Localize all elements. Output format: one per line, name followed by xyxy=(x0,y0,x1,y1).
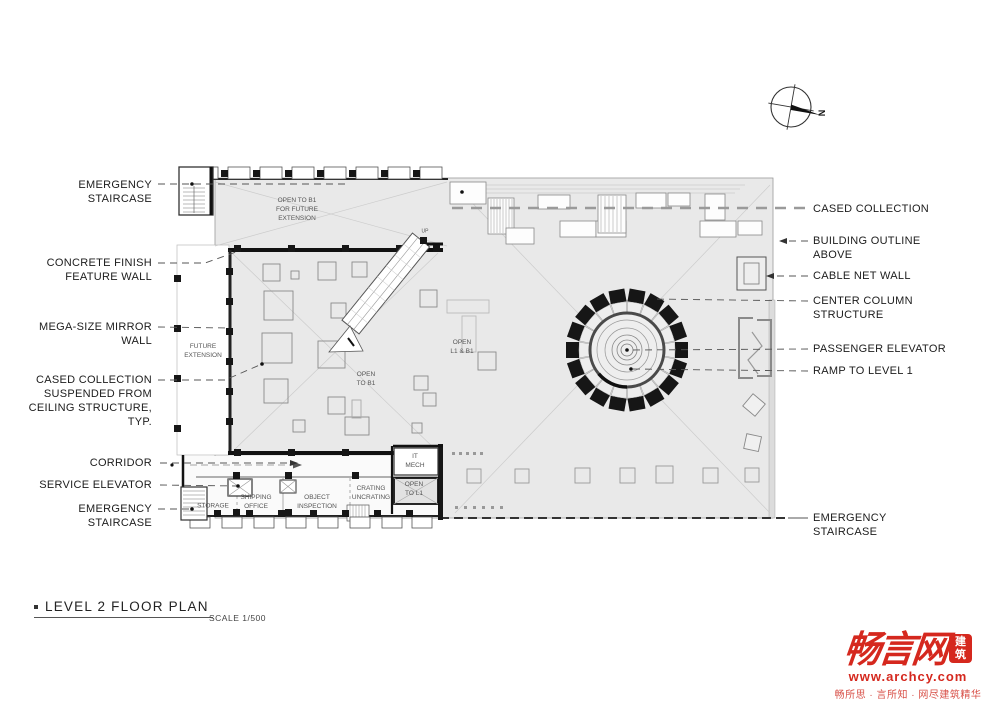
logo-url[interactable]: www.archcy.com xyxy=(824,669,992,684)
label-emergency-staircase-top: EMERGENCY STAIRCASE xyxy=(0,178,152,206)
label-mega-size-mirror-wall: MEGA-SIZE MIRROR WALL xyxy=(0,320,152,348)
scale-note: SCALE 1/500 xyxy=(209,613,266,623)
emergency-staircase-top xyxy=(179,167,213,215)
logo-brand-text: 畅言网 xyxy=(842,631,948,668)
title-bullet xyxy=(34,605,38,609)
plan-label-future-extension: FUTURE EXTENSION xyxy=(184,343,222,361)
plan-label-up: UP xyxy=(422,229,429,236)
logo-seal: 建筑 xyxy=(949,634,972,663)
label-building-outline-above: BUILDING OUTLINE ABOVE xyxy=(813,234,993,262)
label-service-elevator: SERVICE ELEVATOR xyxy=(0,478,152,492)
north-wall xyxy=(192,167,448,179)
label-emergency-staircase-bottom: EMERGENCY STAIRCASE xyxy=(0,502,152,530)
sheet-title: LEVEL 2 FLOOR PLAN xyxy=(34,599,213,618)
archcy-logo: 畅言网 建筑 www.archcy.com 畅所思 · 言所知 · 网尽建筑精华 xyxy=(824,631,992,701)
north-letter: N xyxy=(816,110,826,117)
plan-label-open-to-l1: OPEN TO L1 xyxy=(405,481,423,499)
plan-label-crating-uncrating: CRATING UNCRATING xyxy=(352,485,390,503)
label-emergency-staircase-right: EMERGENCY STAIRCASE xyxy=(813,511,993,539)
cable-net-wall xyxy=(737,257,766,290)
plan-label-it-mech: IT MECH xyxy=(405,453,424,471)
plan-label-open-to-b1: OPEN TO B1 xyxy=(357,371,376,389)
label-corridor: CORRIDOR xyxy=(0,456,152,470)
sheet-title-text: LEVEL 2 FLOOR PLAN xyxy=(45,599,209,614)
floor-plan-sheet: EMERGENCY STAIRCASE CONCRETE FINISH FEAT… xyxy=(0,0,1000,707)
label-center-column-structure: CENTER COLUMN STRUCTURE xyxy=(813,294,993,322)
logo-tagline: 畅所思 · 言所知 · 网尽建筑精华 xyxy=(824,686,992,701)
label-concrete-finish-feature-wall: CONCRETE FINISH FEATURE WALL xyxy=(0,256,152,284)
label-cased-collection-suspended: CASED COLLECTION SUSPENDED FROM CEILING … xyxy=(0,373,152,429)
label-cable-net-wall: CABLE NET WALL xyxy=(813,269,993,283)
plan-label-open-l1-b1: OPEN L1 & B1 xyxy=(450,339,473,357)
plan-label-open-to-b1-future: OPEN TO B1 FOR FUTURE EXTENSION xyxy=(276,197,318,223)
plan-label-object-inspection: OBJECT INSPECTION xyxy=(297,494,337,512)
north-arrow xyxy=(764,80,820,133)
label-ramp-to-level-1: RAMP TO LEVEL 1 xyxy=(813,364,993,378)
plan-label-storage: STORAGE xyxy=(197,503,229,512)
label-cased-collection: CASED COLLECTION xyxy=(813,202,993,216)
label-passenger-elevator: PASSENGER ELEVATOR xyxy=(813,342,993,356)
plan-label-shipping-office: SHIPPING OFFICE xyxy=(240,494,271,512)
